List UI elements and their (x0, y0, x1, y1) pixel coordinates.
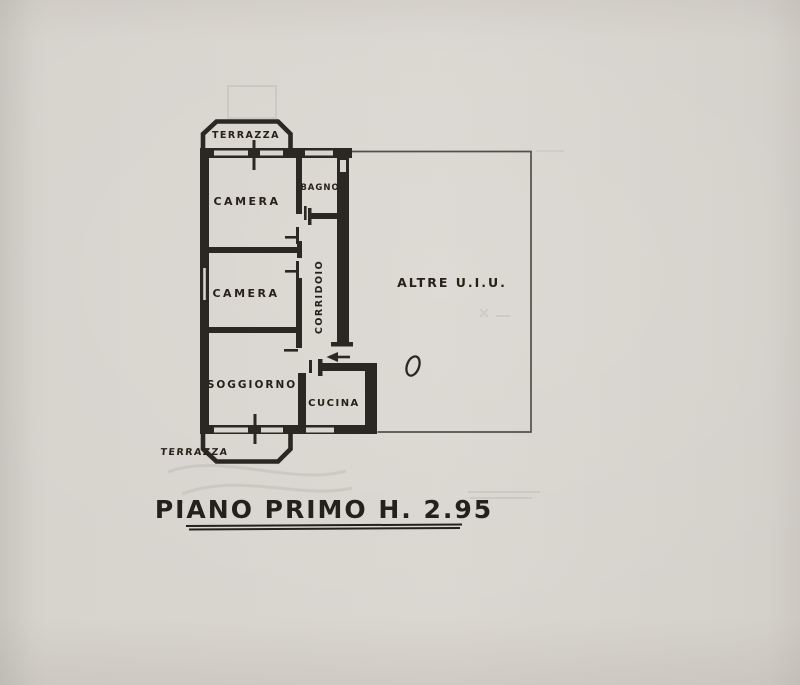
wall-end-cap (331, 342, 353, 347)
room-label-corridoio: CORRIDOIO (314, 260, 325, 334)
room-label-camera-mid: CAMERA (212, 287, 279, 300)
ghost-marks-right (468, 309, 540, 498)
window-slit (260, 151, 283, 156)
room-label-soggiorno: SOGGIORNO (207, 379, 297, 391)
entrance-arrowhead-icon (327, 352, 339, 362)
room-label-terrazza-top: TERRAZZA (212, 130, 280, 141)
wall-segment (310, 213, 337, 219)
scanned-floor-plan-page: TERRAZZA CAMERA BAGNO CAMERA CORRIDOIO S… (0, 0, 800, 685)
page-title: PIANO PRIMO H. 2.95 (155, 495, 493, 524)
wall-segment (365, 367, 377, 427)
floor-plan-drawing: TERRAZZA CAMERA BAGNO CAMERA CORRIDOIO S… (0, 0, 800, 685)
oval-door-mark-icon (404, 355, 422, 378)
wall-end-cap (308, 208, 312, 225)
window-slit (261, 428, 283, 433)
wall-end-cap (297, 321, 302, 338)
window-slit (306, 428, 334, 433)
window-slit (340, 160, 346, 172)
wall-end-cap (318, 359, 323, 376)
door-tick (309, 360, 312, 373)
title-underline (186, 525, 462, 530)
door-jamb (254, 414, 257, 444)
window-slit (214, 151, 248, 156)
wall-segment (337, 148, 349, 346)
window-slit (214, 428, 248, 433)
window-slit (305, 151, 333, 156)
door-tick (296, 261, 299, 278)
ghost-mark (228, 86, 276, 118)
wall-segment (298, 373, 306, 427)
plan-title-block: PIANO PRIMO H. 2.95 (155, 495, 493, 530)
door-jamb (253, 140, 256, 170)
room-label-camera-top: CAMERA (213, 195, 280, 208)
entrance-indicator (327, 352, 351, 362)
room-label-bagno: BAGNO (300, 183, 339, 193)
area-label-altre-uiu: ALTRE U.I.U. (397, 275, 507, 290)
room-label-cucina: CUCINA (308, 398, 360, 409)
door-tick (296, 227, 299, 244)
wall-segment (209, 247, 300, 253)
room-label-terrazza-bottom: TERRAZZA (160, 447, 229, 458)
room-labels: TERRAZZA CAMERA BAGNO CAMERA CORRIDOIO S… (160, 130, 507, 458)
altre-uiu-outline (352, 152, 531, 433)
thin-boundary (352, 152, 531, 433)
door-tick (304, 206, 307, 220)
pencil-scribble (168, 466, 352, 494)
door-tick (284, 349, 298, 352)
wall-segment (209, 327, 300, 333)
